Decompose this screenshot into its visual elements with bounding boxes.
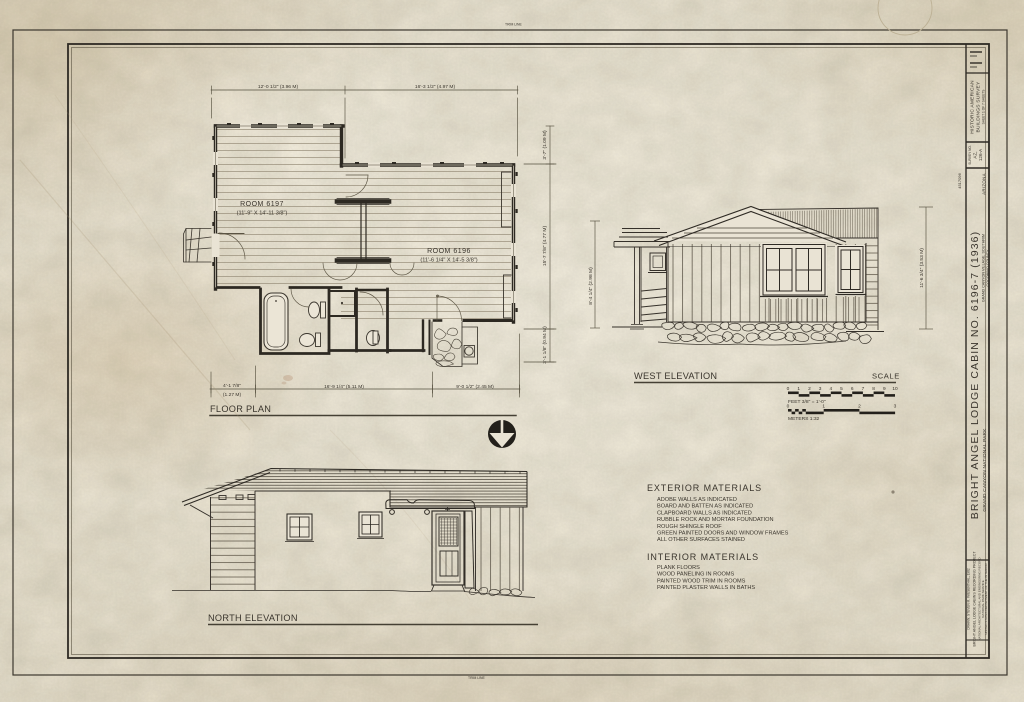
svg-text:11'-6 3/4" (3.53 M): 11'-6 3/4" (3.53 M) <box>919 248 925 288</box>
svg-text:6: 6 <box>851 386 854 392</box>
svg-text:PAINTED PLASTER WALLS IN BAT: PAINTED PLASTER WALLS IN BATHS <box>657 585 755 591</box>
svg-text:TRIM LINE: TRIM LINE <box>468 676 486 680</box>
svg-text:3: 3 <box>819 386 822 392</box>
svg-text:3: 3 <box>894 404 897 410</box>
svg-text:7: 7 <box>862 386 865 392</box>
svg-text:ADOBE WALLS AS INDICATED: ADOBE WALLS AS INDICATED <box>657 497 737 503</box>
svg-text:8'-4 1/4" (2.98 M): 8'-4 1/4" (2.98 M) <box>588 267 594 305</box>
svg-text:WOOD PANELING IN ROOMS: WOOD PANELING IN ROOMS <box>657 572 735 578</box>
svg-text:16'-3 1/2" (4.97 M): 16'-3 1/2" (4.97 M) <box>415 84 456 90</box>
svg-text:SHEET 1 OF 7 SHEETS: SHEET 1 OF 7 SHEETS <box>982 90 986 125</box>
svg-text:2: 2 <box>858 404 861 410</box>
svg-text:2: 2 <box>808 386 811 392</box>
svg-text:METERS 1:32: METERS 1:32 <box>788 416 820 422</box>
svg-text:(11'-9" X 14'-11 3/8"): (11'-9" X 14'-11 3/8") <box>237 211 288 217</box>
svg-text:1: 1 <box>797 386 800 392</box>
svg-text:CLAPBOARD WALLS AS INDICATED: CLAPBOARD WALLS AS INDICATED <box>657 510 752 516</box>
svg-text:HISTORIC AMERICAN: HISTORIC AMERICAN <box>970 80 976 134</box>
svg-text:WEST ELEVATION: WEST ELEVATION <box>634 371 717 381</box>
svg-text:4517096: 4517096 <box>957 172 962 188</box>
svg-text:GRAND CANYON VILLAGE, SOUTHRIM: GRAND CANYON VILLAGE, SOUTHRIM <box>982 234 986 302</box>
svg-text:ALL OTHER SURFACES STAINED: ALL OTHER SURFACES STAINED <box>657 537 745 543</box>
svg-text:4'-1 7/8": 4'-1 7/8" <box>223 383 241 389</box>
svg-text:9'-0 1/2" (2.45 M): 9'-0 1/2" (2.45 M) <box>456 384 494 390</box>
svg-text:COCONINO COUNTY: COCONINO COUNTY <box>986 249 990 286</box>
svg-text:10: 10 <box>892 386 898 392</box>
svg-text:BOARD AND BATTEN AS INDICATED: BOARD AND BATTEN AS INDICATED <box>657 504 753 510</box>
svg-text:15'-7 7/8" (4.77 M): 15'-7 7/8" (4.77 M) <box>542 226 548 267</box>
svg-text:SCALE: SCALE <box>872 372 900 381</box>
svg-text:FEET 3/8" = 1'-0": FEET 3/8" = 1'-0" <box>788 399 826 405</box>
svg-text:1: 1 <box>822 404 825 410</box>
svg-text:ROOM 6196: ROOM 6196 <box>427 248 471 255</box>
svg-text:DRAWN: STEVEN M. WIESENTHAL, 1: DRAWN: STEVEN M. WIESENTHAL, 1982 <box>967 568 971 630</box>
svg-text:EXTERIOR MATERIALS: EXTERIOR MATERIALS <box>647 483 762 493</box>
svg-text:UNITED STATES DEPARTMENT OF TH: UNITED STATES DEPARTMENT OF THE INTERIOR <box>984 562 988 634</box>
svg-text:GREEN PAINTED DOORS AND WINDO: GREEN PAINTED DOORS AND WINDOW FRAMES <box>657 531 789 537</box>
svg-text:TRIM LINE: TRIM LINE <box>505 23 523 27</box>
svg-text:126-A: 126-A <box>978 148 983 161</box>
svg-text:BUILDINGS SURVEY: BUILDINGS SURVEY <box>975 81 981 132</box>
svg-text:PLANK FLOORS: PLANK FLOORS <box>657 565 700 571</box>
svg-text:3'-1 1/8" (0.94 M): 3'-1 1/8" (0.94 M) <box>542 326 548 364</box>
svg-text:4: 4 <box>829 386 832 392</box>
svg-text:(1.27 M): (1.27 M) <box>223 392 242 398</box>
svg-text:INTERIOR MATERIALS: INTERIOR MATERIALS <box>647 552 759 562</box>
svg-text:GRAND CANYON NATIONAL PARK: GRAND CANYON NATIONAL PARK <box>982 428 988 512</box>
svg-text:ROUGH SHINGLE ROOF: ROUGH SHINGLE ROOF <box>657 524 722 530</box>
svg-text:ARIZONA: ARIZONA <box>982 173 987 195</box>
svg-text:NORTH ELEVATION: NORTH ELEVATION <box>208 613 298 623</box>
svg-text:0: 0 <box>787 386 790 392</box>
svg-text:9: 9 <box>883 386 886 392</box>
svg-text:8: 8 <box>872 386 875 392</box>
svg-text:RUBBLE ROCK AND MORTAR FOUNDAT: RUBBLE ROCK AND MORTAR FOUNDATION <box>657 517 774 523</box>
svg-text:AZ,: AZ, <box>973 151 978 158</box>
svg-text:BRIGHT ANGEL LODGE CABIN NO. 6: BRIGHT ANGEL LODGE CABIN NO. 6196-7 (193… <box>969 231 981 519</box>
svg-text:SURVEY NO.: SURVEY NO. <box>968 145 972 165</box>
svg-text:5: 5 <box>840 386 843 392</box>
svg-text:0: 0 <box>787 404 790 410</box>
svg-text:16'-9 1/4" (5.11 M): 16'-9 1/4" (5.11 M) <box>324 384 364 390</box>
svg-text:PAINTED WOOD TRIM IN ROOMS: PAINTED WOOD TRIM IN ROOMS <box>657 578 746 584</box>
svg-text:12'-0 1/2" (3.96 M): 12'-0 1/2" (3.96 M) <box>258 84 299 90</box>
svg-text:BRIGHT ANGEL LODGE CABINS RECO: BRIGHT ANGEL LODGE CABINS RECORDING PROJ… <box>973 551 977 647</box>
svg-text:ROOM 6197: ROOM 6197 <box>240 201 284 208</box>
svg-text:3'-7" (1.09 M): 3'-7" (1.09 M) <box>542 130 548 160</box>
svg-text:FLOOR PLAN: FLOOR PLAN <box>210 404 271 414</box>
svg-text:(11'-6 1/4" X 14'-5 3/8"): (11'-6 1/4" X 14'-5 3/8") <box>420 258 477 264</box>
